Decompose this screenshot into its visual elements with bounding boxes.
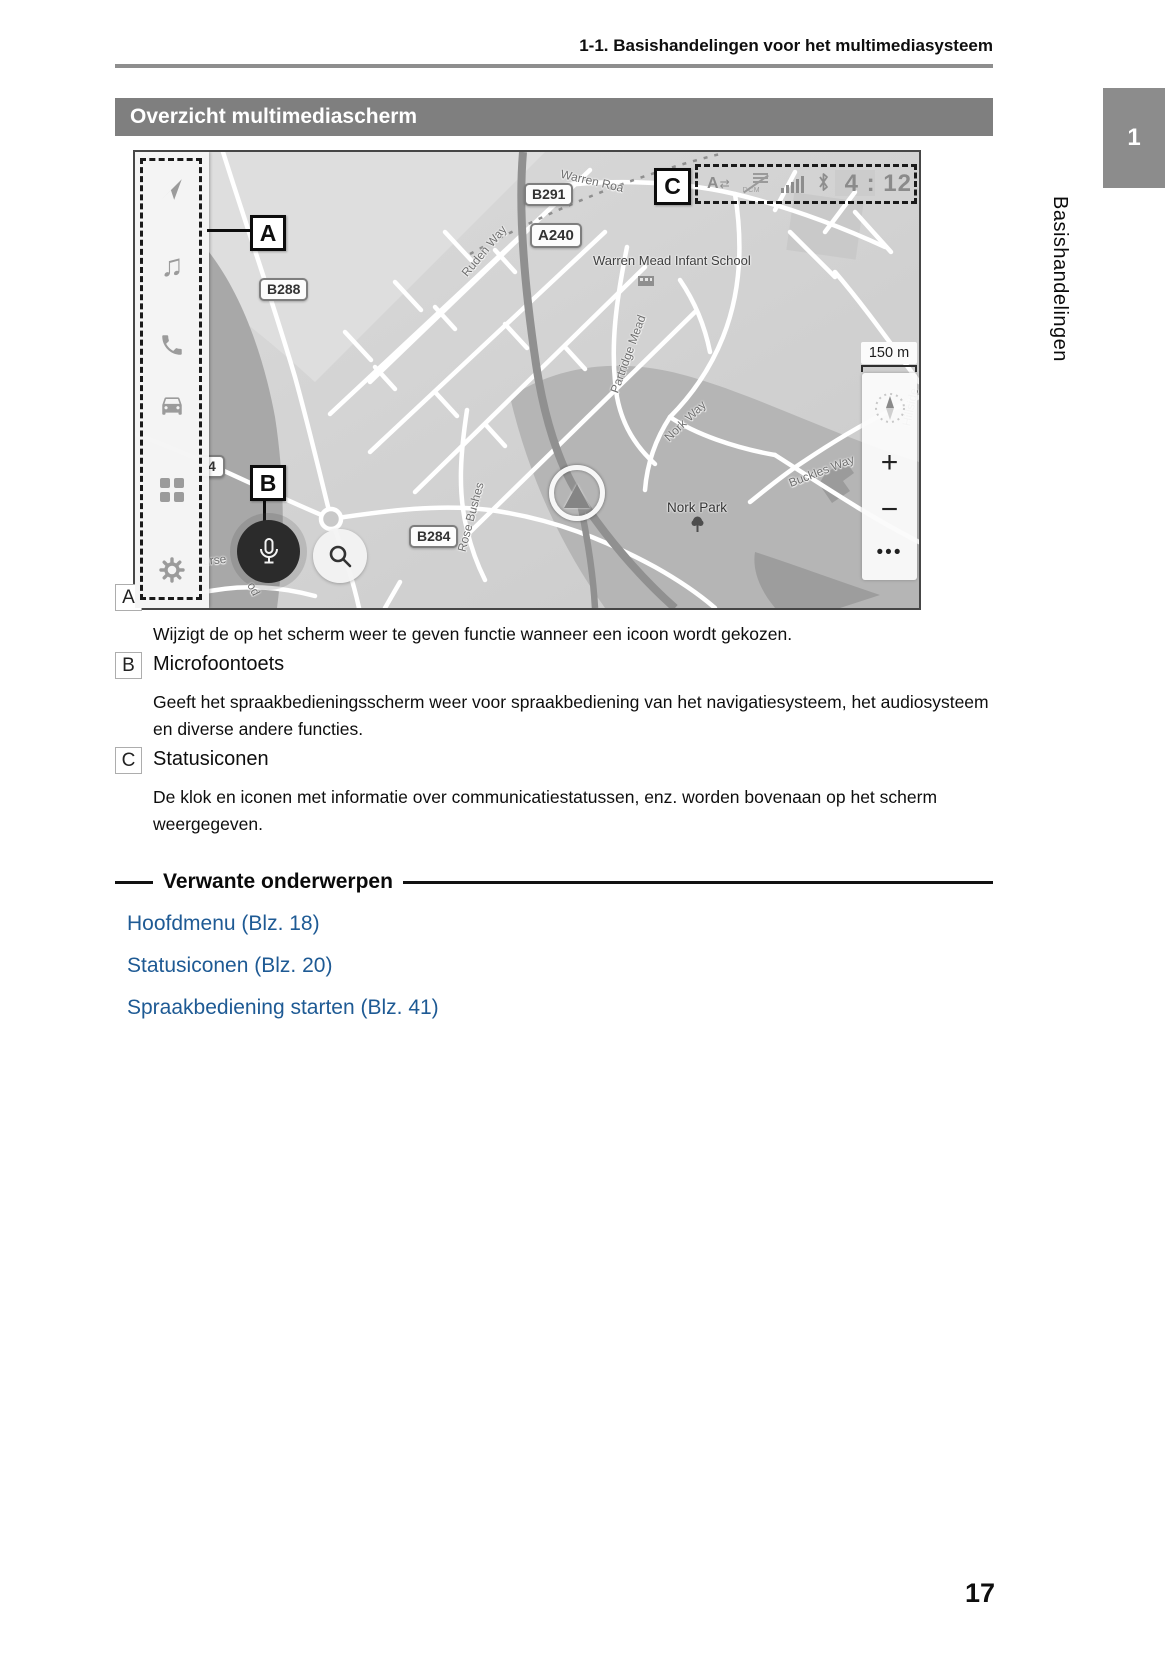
legend-desc-a: Wijzigt de op het scherm weer te geven f…: [153, 621, 1001, 648]
road-badge-b284: B284: [409, 525, 458, 548]
callout-b: B: [250, 465, 286, 501]
map-scale-bar: [861, 365, 917, 372]
legend-desc-c: De klok en iconen met informatie over co…: [153, 784, 1001, 838]
chapter-number: 1: [1127, 124, 1140, 152]
signal-strength-icon: [781, 176, 804, 193]
bluetooth-icon: [817, 172, 830, 197]
road-badge-b288: B288: [259, 278, 308, 301]
related-topics-heading-row: Verwante onderwerpen: [115, 870, 993, 894]
chapter-tab: 1: [1103, 88, 1165, 188]
heading-right-rule: [403, 881, 993, 884]
clock: 4 : 12: [845, 170, 912, 198]
legend-title-b: Microfoontoets: [153, 653, 284, 676]
legend-key-b: B: [115, 652, 142, 679]
poi-school-label: Warren Mead Infant School: [593, 253, 751, 268]
page-header: 1-1. Basishandelingen voor het multimedi…: [579, 36, 993, 56]
related-link-hoofdmenu[interactable]: Hoofdmenu (Blz. 18): [127, 912, 320, 936]
dcm-off-icon: DCM: [743, 173, 768, 195]
callout-c: C: [654, 168, 691, 205]
legend-desc-b: Geeft het spraakbedieningsscherm weer vo…: [153, 689, 1001, 743]
status-icon-strip: A⇄ DCM 4 : 12: [695, 164, 917, 204]
related-topics-heading: Verwante onderwerpen: [163, 870, 393, 894]
header-rule: [115, 64, 993, 68]
road-badge-a240: A240: [530, 223, 582, 248]
tree-icon: [691, 516, 704, 538]
section-title-bar: Overzicht multimediascherm: [115, 98, 993, 136]
search-button[interactable]: [313, 529, 367, 583]
school-building-icon: [637, 273, 655, 292]
compass-icon[interactable]: [873, 391, 907, 430]
region-a-dashed-frame: [140, 158, 202, 600]
related-link-statusiconen[interactable]: Statusiconen (Blz. 20): [127, 954, 332, 978]
manual-page: 1-1. Basishandelingen voor het multimedi…: [0, 0, 1165, 1653]
zoom-in-button[interactable]: +: [881, 448, 899, 478]
zoom-out-button[interactable]: −: [881, 495, 899, 525]
heading-left-rule: [115, 881, 153, 884]
map-control-panel: + − •••: [862, 373, 917, 580]
heading-triangle: [564, 484, 590, 508]
section-title: Overzicht multimediascherm: [130, 105, 417, 129]
legend-title-c: Statusiconen: [153, 748, 269, 771]
current-position-marker: [549, 465, 605, 521]
chapter-side-label: Basishandelingen: [1048, 196, 1071, 362]
callout-a-connector: [207, 229, 250, 232]
multimedia-screen-map: ♫: [133, 150, 921, 610]
page-number: 17: [965, 1578, 995, 1609]
legend-key-c: C: [115, 747, 142, 774]
related-link-spraakbediening[interactable]: Spraakbediening starten (Blz. 41): [127, 996, 439, 1020]
callout-a: A: [250, 215, 286, 251]
microphone-button[interactable]: [237, 520, 300, 583]
poi-park-label: Nork Park: [667, 500, 727, 515]
road-badge-b291: B291: [524, 183, 573, 206]
map-scale-label: 150 m: [861, 342, 917, 364]
voice-recognition-icon: A⇄: [707, 175, 730, 193]
more-options-button[interactable]: •••: [877, 543, 903, 562]
